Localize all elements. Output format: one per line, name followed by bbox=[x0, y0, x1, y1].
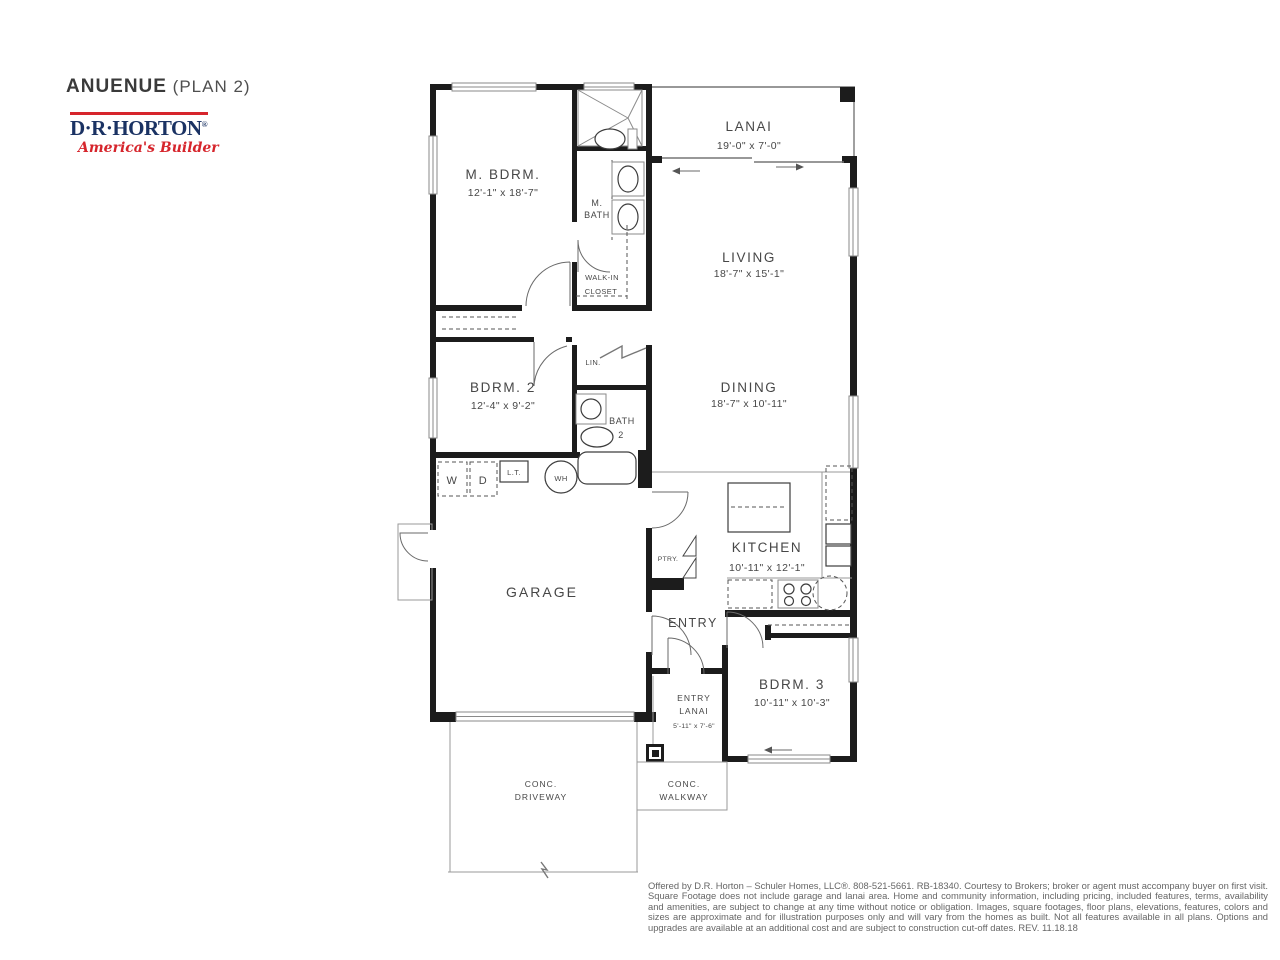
label-bdrm2: BDRM. 2 bbox=[470, 380, 536, 395]
label-m-bath-1: M. bbox=[591, 198, 602, 208]
oven bbox=[826, 524, 851, 544]
floor-plan-page: ANUENUE (PLAN 2) D·R·HORTON® America's B… bbox=[0, 0, 1280, 960]
label-lanai: LANAI bbox=[725, 119, 772, 134]
label-garage: GARAGE bbox=[506, 584, 578, 600]
dims-bdrm3: 10'-11" x 10'-3" bbox=[754, 697, 830, 709]
label-entry-lanai-1: ENTRY bbox=[677, 693, 711, 703]
pantry-bifold-door bbox=[683, 536, 696, 578]
toilet bbox=[581, 427, 613, 447]
dims-living: 18'-7" x 15'-1" bbox=[714, 268, 785, 280]
dims-lanai: 19'-0" x 7'-0" bbox=[717, 140, 781, 152]
label-driveway-1: CONC. bbox=[525, 779, 557, 789]
label-walkway-2: WALKWAY bbox=[659, 792, 708, 802]
label-m-bdrm: M. BDRM. bbox=[465, 167, 540, 182]
posts bbox=[646, 744, 664, 762]
label-bdrm3: BDRM. 3 bbox=[759, 677, 825, 692]
label-water-heater: WH bbox=[554, 474, 567, 483]
dims-entry-lanai: 5'-11" x 7'-6" bbox=[673, 723, 715, 730]
label-bath2-2: 2 bbox=[618, 430, 624, 440]
label-walkway-1: CONC. bbox=[668, 779, 700, 789]
dims-bdrm2: 12'-4" x 9'-2" bbox=[471, 400, 535, 412]
label-dining: DINING bbox=[721, 380, 778, 395]
site-labels: CONC. DRIVEWAY CONC. WALKWAY bbox=[515, 779, 709, 802]
dims-m-bdrm: 12'-1" x 18'-7" bbox=[468, 187, 539, 199]
bathtub bbox=[578, 452, 636, 484]
dims-dining: 18'-7" x 10'-11" bbox=[711, 398, 787, 410]
refrigerator bbox=[826, 466, 852, 520]
oven bbox=[826, 546, 851, 566]
bath2-fixtures bbox=[576, 394, 636, 484]
bdrm2-closet-shelves bbox=[442, 317, 516, 329]
disclaimer-text: Offered by D.R. Horton – Schuler Homes, … bbox=[648, 881, 1268, 933]
dims-kitchen: 10'-11" x 12'-1" bbox=[729, 562, 805, 574]
label-walkin-2: CLOSET bbox=[585, 287, 617, 296]
garage-side-door bbox=[398, 524, 438, 600]
range bbox=[778, 580, 818, 608]
label-entry: ENTRY bbox=[668, 616, 718, 630]
floor-plan-drawing: M. BDRM. 12'-1" x 18'-7" LANAI 19'-0" x … bbox=[0, 0, 1280, 960]
label-driveway-2: DRIVEWAY bbox=[515, 792, 567, 802]
sliding-door bbox=[662, 158, 844, 175]
label-lin: LIN. bbox=[585, 358, 600, 367]
linen-door bbox=[600, 346, 646, 358]
label-dryer: D bbox=[479, 475, 487, 487]
driveway-break-mark bbox=[541, 862, 548, 878]
label-living: LIVING bbox=[722, 250, 776, 265]
toilet bbox=[595, 129, 625, 149]
label-m-bath-2: BATH bbox=[584, 210, 610, 220]
label-entry-lanai-2: LANAI bbox=[679, 706, 709, 716]
label-washer: W bbox=[447, 475, 458, 487]
garage-door bbox=[456, 712, 634, 721]
label-pantry: PTRY. bbox=[658, 556, 679, 563]
label-walkin-1: WALK-IN bbox=[585, 273, 619, 282]
label-laundry-tub: L.T. bbox=[507, 468, 521, 477]
label-bath2-1: BATH bbox=[609, 416, 635, 426]
counter-cabinet bbox=[728, 580, 772, 608]
label-kitchen: KITCHEN bbox=[732, 540, 802, 555]
